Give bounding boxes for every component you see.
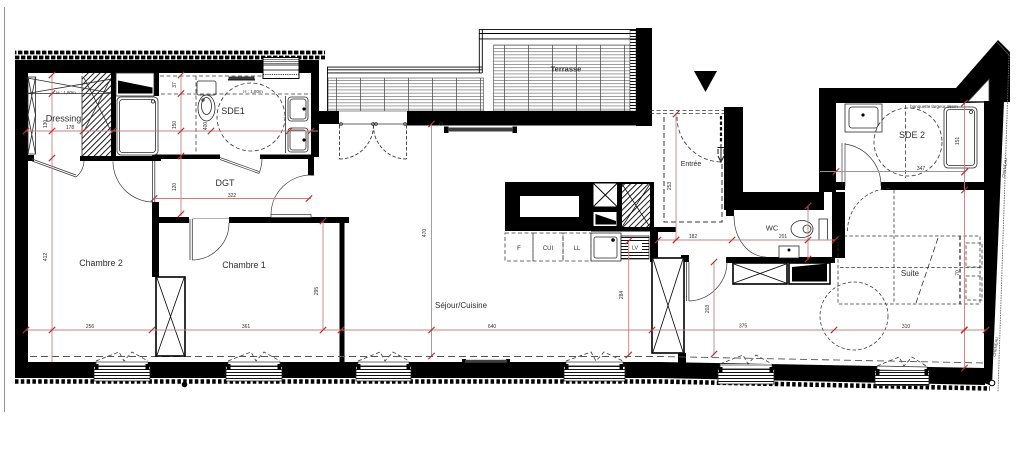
svg-text:Suite: Suite: [901, 269, 920, 278]
svg-text:WC: WC: [766, 224, 779, 233]
svg-text:SDE 2: SDE 2: [899, 130, 925, 140]
svg-text:37: 37: [172, 82, 178, 88]
svg-text:H : 1,80m: H : 1,80m: [243, 89, 263, 94]
svg-text:400: 400: [203, 122, 209, 131]
svg-text:banquette largeur 15cm: banquette largeur 15cm: [910, 104, 958, 109]
svg-text:640: 640: [488, 324, 497, 330]
svg-text:LV: LV: [632, 246, 639, 252]
svg-text:256: 256: [86, 324, 95, 330]
svg-text:150: 150: [172, 121, 178, 130]
svg-text:70: 70: [955, 270, 961, 276]
svg-text:201: 201: [779, 234, 788, 240]
svg-text:Entrée: Entrée: [681, 161, 702, 168]
svg-text:151: 151: [955, 137, 961, 146]
svg-text:Chambre 1: Chambre 1: [222, 260, 266, 270]
svg-text:347: 347: [917, 166, 926, 172]
svg-text:361: 361: [242, 324, 251, 330]
svg-text:470: 470: [422, 229, 428, 238]
svg-text:Terrasse: Terrasse: [551, 65, 582, 74]
svg-text:120: 120: [172, 183, 178, 192]
svg-text:203: 203: [705, 305, 711, 314]
svg-text:LL: LL: [574, 246, 581, 252]
svg-text:295: 295: [314, 287, 320, 296]
svg-text:Chambre 2: Chambre 2: [79, 258, 123, 268]
svg-text:F: F: [517, 246, 521, 252]
svg-text:Séjour/Cuisine: Séjour/Cuisine: [435, 301, 488, 310]
svg-text:CUI: CUI: [543, 246, 554, 252]
svg-text:310: 310: [902, 324, 911, 330]
svg-text:178: 178: [66, 125, 75, 131]
svg-text:182: 182: [689, 234, 698, 240]
svg-text:DGT: DGT: [216, 178, 236, 188]
svg-text:253: 253: [667, 182, 673, 191]
svg-text:375: 375: [739, 324, 748, 330]
svg-text:322: 322: [228, 193, 237, 199]
svg-text:412: 412: [43, 253, 49, 262]
svg-text:284: 284: [619, 291, 625, 300]
svg-text:H : 1,80m: H : 1,80m: [56, 90, 76, 95]
svg-text:SDE1: SDE1: [221, 106, 245, 116]
svg-text:Dressing: Dressing: [46, 114, 82, 124]
